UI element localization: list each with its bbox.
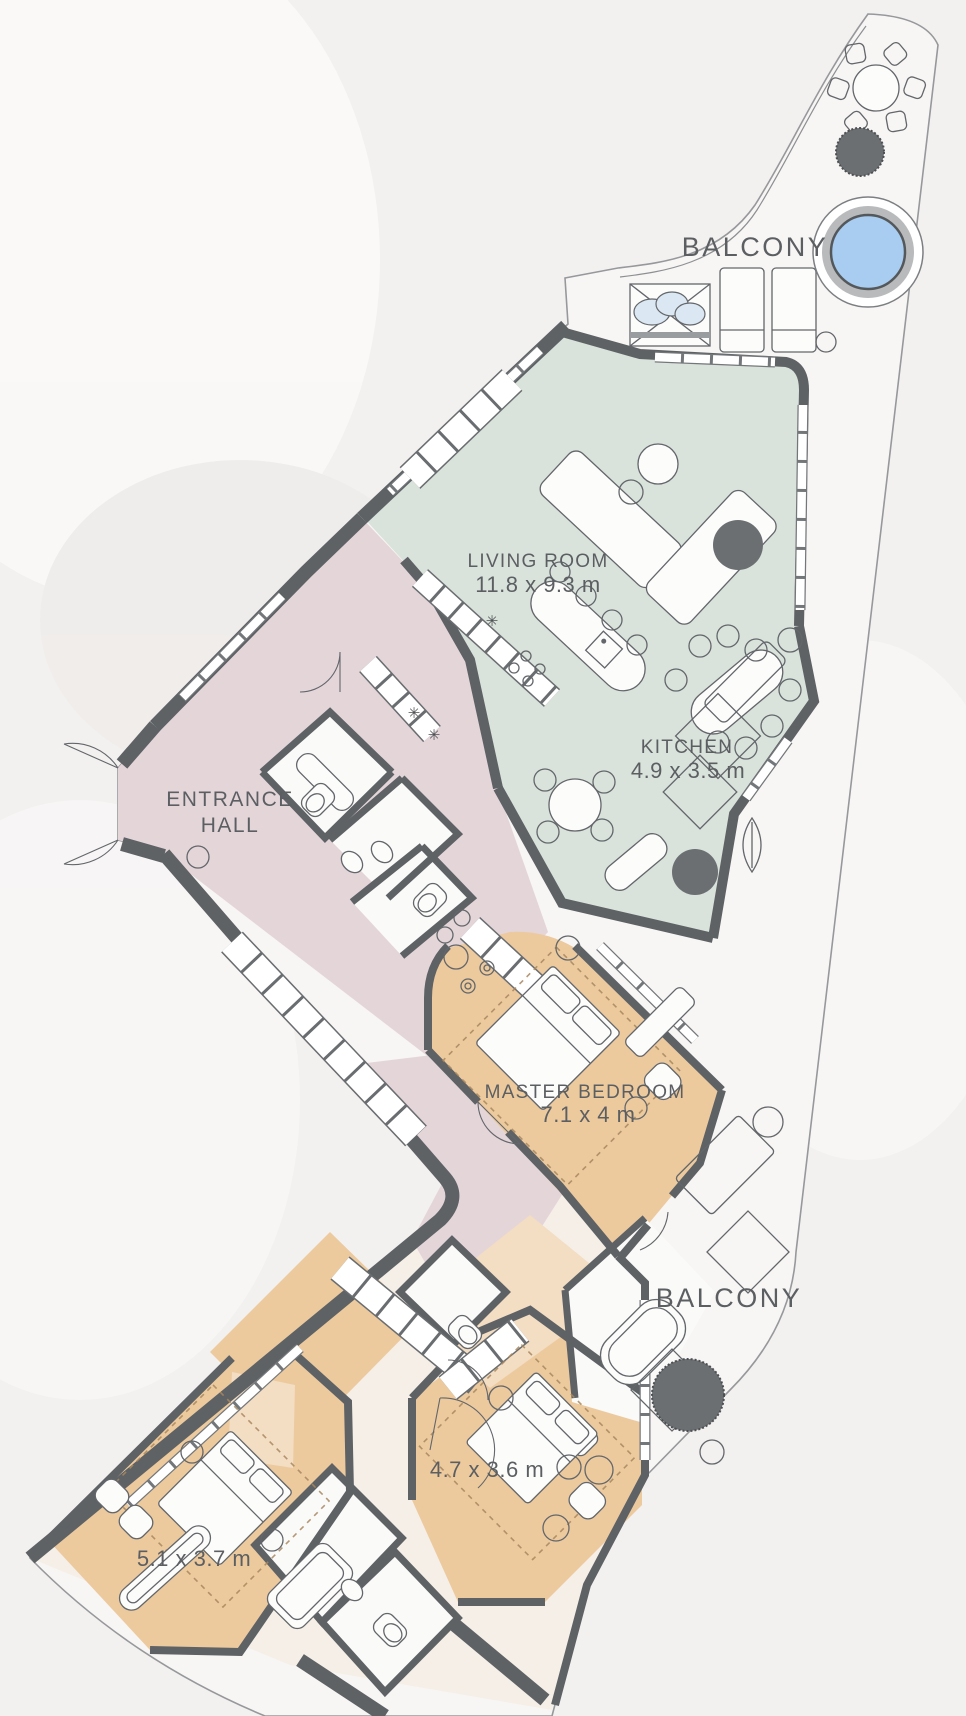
wine-fridge-icon: ✳ — [428, 727, 441, 744]
label-entrance-hall-2: HALL — [201, 814, 260, 837]
label-bedroom2-size: 4.7 x 3.6 m — [430, 1457, 544, 1482]
label-bedroom3-size: 5.1 x 3.7 m — [137, 1546, 251, 1571]
pool — [813, 197, 923, 307]
label-kitchen: KITCHEN — [641, 737, 734, 758]
planter-circle-living — [713, 520, 763, 570]
planter-circle-nook — [672, 849, 718, 895]
coffee-table — [638, 444, 678, 484]
label-living-room: LIVING ROOM — [468, 551, 609, 572]
freezer-icon: ✳ — [408, 705, 421, 722]
label-kitchen-size: 4.9 x 3.5 m — [631, 758, 745, 783]
flower-box — [630, 284, 710, 346]
label-balcony-top: BALCONY — [682, 232, 829, 262]
label-living-room-size: 11.8 x 9.3 m — [475, 572, 600, 597]
label-master-bedroom-size: 7.1 x 4 m — [541, 1102, 636, 1127]
floor-plan-drawing: ✳ ✳ ✳ — [0, 0, 966, 1716]
planter-circle-top — [836, 128, 884, 176]
label-entrance-hall-1: ENTRANCE — [166, 788, 294, 811]
label-balcony-bottom: BALCONY — [656, 1283, 803, 1313]
fridge-icon: ✳ — [486, 613, 499, 630]
planter-circle-bottom — [652, 1359, 724, 1431]
label-master-bedroom: MASTER BEDROOM — [485, 1082, 686, 1103]
floor-plan-page: ✳ ✳ ✳ — [0, 0, 966, 1716]
